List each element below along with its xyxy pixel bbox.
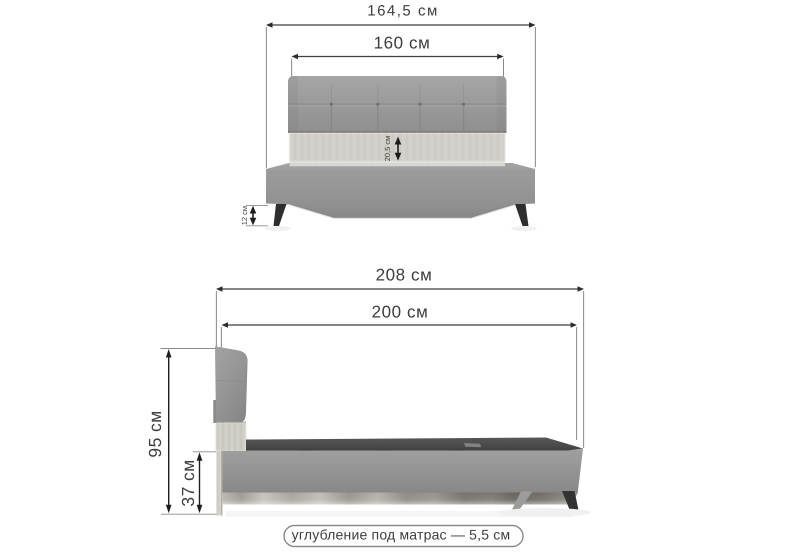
svg-text:12 см: 12 см	[240, 206, 249, 225]
svg-text:200 см: 200 см	[372, 303, 429, 322]
svg-text:37 см: 37 см	[178, 459, 198, 506]
svg-text:95 см: 95 см	[145, 410, 165, 457]
svg-text:164,5 см: 164,5 см	[367, 3, 439, 20]
svg-text:160 см: 160 см	[374, 34, 431, 53]
svg-text:208 см: 208 см	[376, 266, 433, 285]
svg-text:20,5 см: 20,5 см	[383, 136, 392, 162]
svg-text:углубление под матрас — 5,5 см: углубление под матрас — 5,5 см	[292, 527, 511, 543]
